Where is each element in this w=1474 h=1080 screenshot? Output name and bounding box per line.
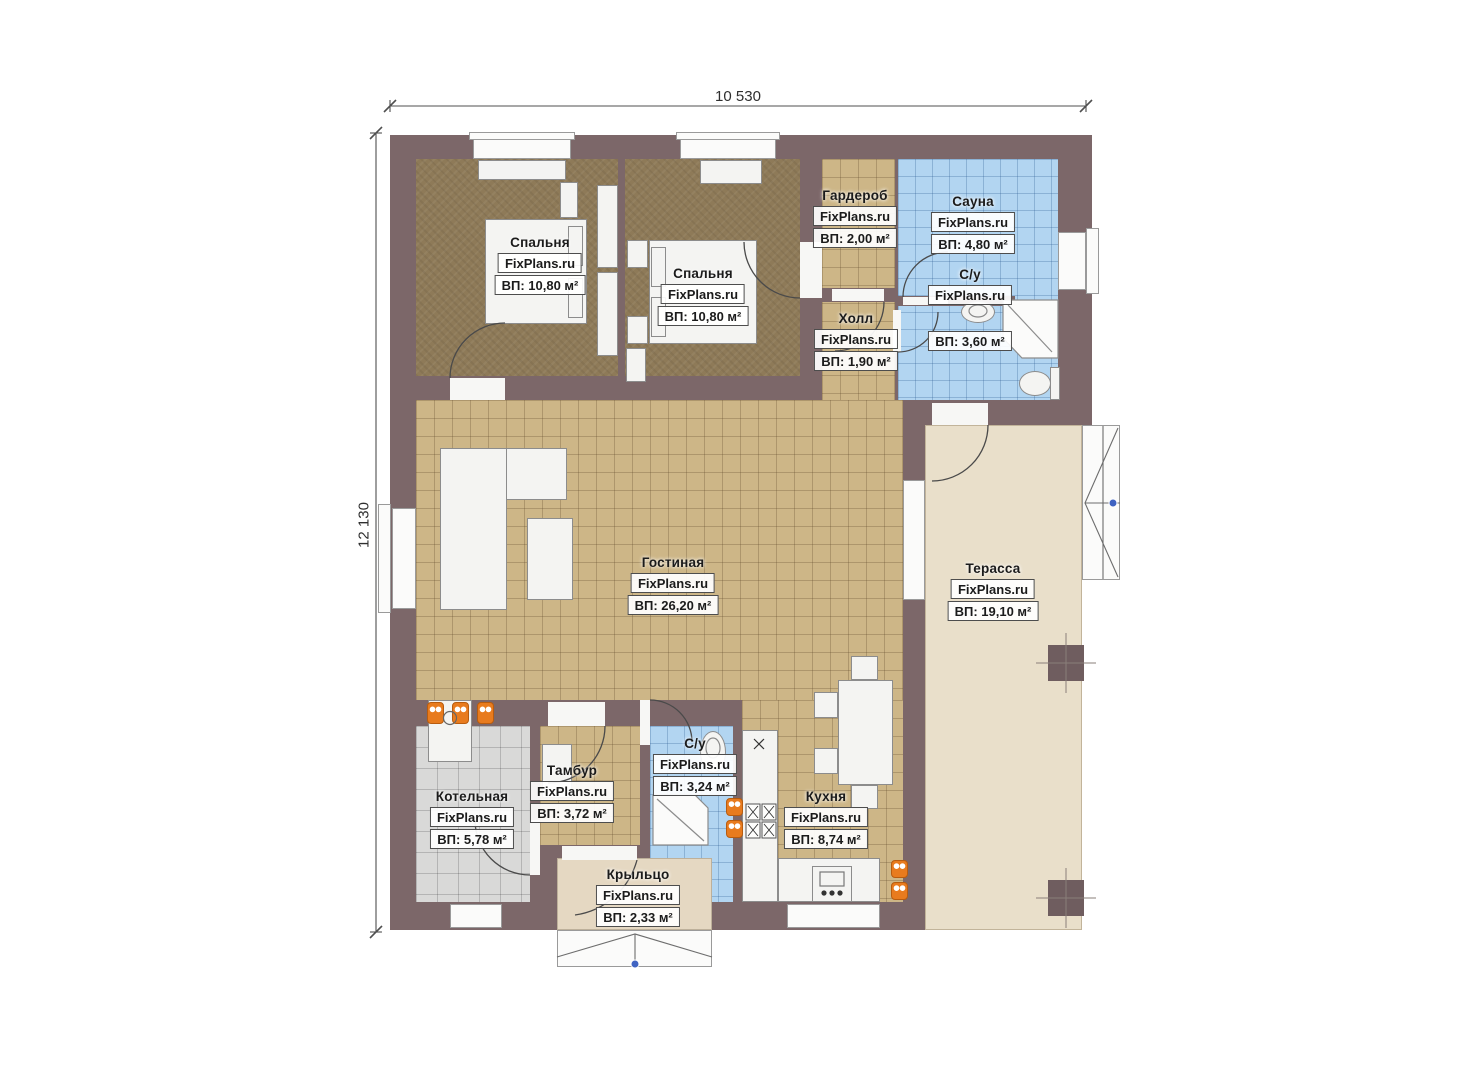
room-name: Спальня — [658, 267, 749, 281]
room-name: Холл — [814, 312, 898, 326]
room-name: С/у — [653, 737, 737, 751]
room-label-bathroom-2: С/у FixPlans.ru ВП: 3,24 м² — [653, 737, 737, 796]
room-area: ВП: 3,60 м² — [928, 331, 1012, 351]
room-area: ВП: 10,80 м² — [495, 275, 586, 295]
room-area: ВП: 19,10 м² — [948, 601, 1039, 621]
room-label-bathroom-1: С/у FixPlans.ru ВП: 3,60 м² — [928, 268, 1012, 351]
watermark: FixPlans.ru — [951, 579, 1035, 599]
room-area: ВП: 10,80 м² — [658, 306, 749, 326]
room-area: ВП: 3,24 м² — [653, 776, 737, 796]
watermark: FixPlans.ru — [813, 206, 897, 226]
room-name: Кухня — [784, 790, 868, 804]
room-area: ВП: 1,90 м² — [814, 351, 898, 371]
dimension-height: 12 130 — [356, 502, 373, 548]
room-area: ВП: 4,80 м² — [931, 234, 1015, 254]
room-label-hall: Холл FixPlans.ru ВП: 1,90 м² — [814, 312, 898, 371]
floor-plan-canvas: 10 530 12 130 Спальня FixPlans.ru ВП: 10… — [0, 0, 1474, 1080]
room-label-porch: Крыльцо FixPlans.ru ВП: 2,33 м² — [596, 868, 680, 927]
stove-burners — [746, 804, 776, 838]
room-area: ВП: 8,74 м² — [784, 829, 868, 849]
room-label-kitchen: Кухня FixPlans.ru ВП: 8,74 м² — [784, 790, 868, 849]
watermark: FixPlans.ru — [931, 212, 1015, 232]
room-label-bedroom-2: Спальня FixPlans.ru ВП: 10,80 м² — [658, 267, 749, 326]
room-name: Терасса — [948, 562, 1039, 576]
room-name: Гардероб — [813, 189, 897, 203]
watermark: FixPlans.ru — [430, 807, 514, 827]
room-name: Тамбур — [530, 764, 614, 778]
room-label-vestibule: Тамбур FixPlans.ru ВП: 3,72 м² — [530, 764, 614, 823]
room-label-terrace: Терасса FixPlans.ru ВП: 19,10 м² — [948, 562, 1039, 621]
room-label-bedroom-1: Спальня FixPlans.ru ВП: 10,80 м² — [495, 236, 586, 295]
room-label-boiler-room: Котельная FixPlans.ru ВП: 5,78 м² — [430, 790, 514, 849]
room-label-wardrobe: Гардероб FixPlans.ru ВП: 2,00 м² — [813, 189, 897, 248]
dimension-width: 10 530 — [715, 88, 761, 105]
room-area: ВП: 2,33 м² — [596, 907, 680, 927]
watermark: FixPlans.ru — [814, 329, 898, 349]
room-area: ВП: 3,72 м² — [530, 803, 614, 823]
watermark: FixPlans.ru — [928, 285, 1012, 305]
room-area: ВП: 5,78 м² — [430, 829, 514, 849]
watermark: FixPlans.ru — [661, 284, 745, 304]
plan-annotations — [0, 0, 1474, 1080]
room-name: Котельная — [430, 790, 514, 804]
room-name: С/у — [928, 268, 1012, 282]
watermark: FixPlans.ru — [498, 253, 582, 273]
pillar-crosshairs — [1036, 633, 1096, 928]
watermark: FixPlans.ru — [631, 573, 715, 593]
room-name: Крыльцо — [596, 868, 680, 882]
room-name: Спальня — [495, 236, 586, 250]
room-label-sauna: Сауна FixPlans.ru ВП: 4,80 м² — [931, 195, 1015, 254]
watermark: FixPlans.ru — [530, 781, 614, 801]
room-label-living-room: Гостиная FixPlans.ru ВП: 26,20 м² — [628, 556, 719, 615]
watermark: FixPlans.ru — [784, 807, 868, 827]
watermark: FixPlans.ru — [653, 754, 737, 774]
room-area: ВП: 2,00 м² — [813, 228, 897, 248]
watermark: FixPlans.ru — [596, 885, 680, 905]
room-area: ВП: 26,20 м² — [628, 595, 719, 615]
room-name: Гостиная — [628, 556, 719, 570]
room-name: Сауна — [931, 195, 1015, 209]
